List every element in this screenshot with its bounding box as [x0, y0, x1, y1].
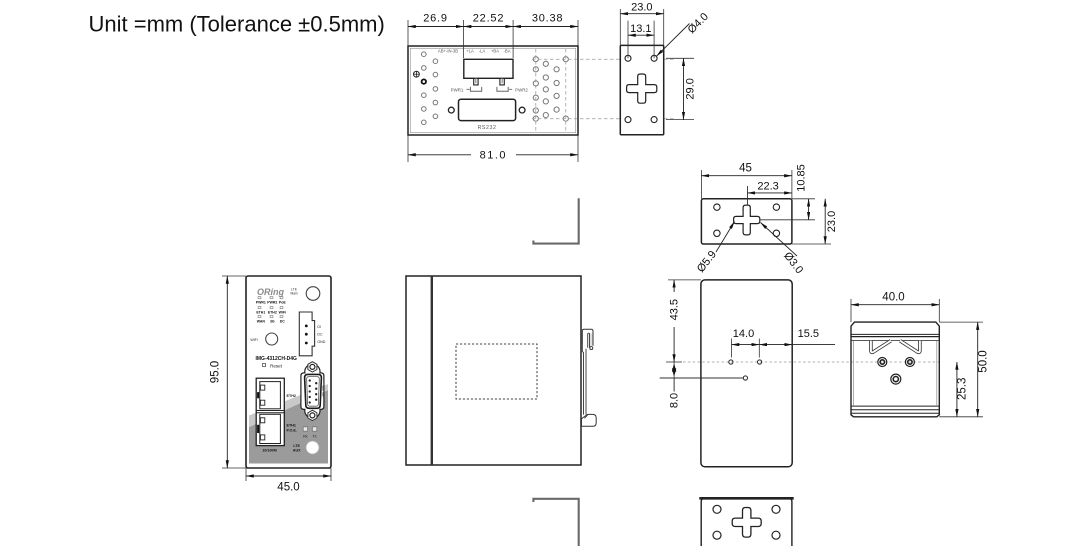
- svg-text:3G: 3G: [270, 319, 275, 323]
- svg-text:15.5: 15.5: [798, 328, 819, 340]
- svg-text:81.0: 81.0: [480, 150, 507, 162]
- svg-text:AB+-IN-3B: AB+-IN-3B: [438, 49, 458, 54]
- svg-text:50.0: 50.0: [978, 350, 990, 372]
- svg-text:WAN: WAN: [257, 319, 266, 323]
- svg-text:PWR2: PWR2: [515, 88, 528, 93]
- svg-text:45: 45: [739, 163, 752, 175]
- svg-text:ETH1: ETH1: [287, 424, 296, 428]
- svg-text:WiFi: WiFi: [250, 338, 257, 342]
- svg-text:PWR1: PWR1: [451, 88, 464, 93]
- svg-text:Main: Main: [290, 292, 297, 296]
- svg-text:+BA: +BA: [491, 49, 499, 54]
- svg-text:PWR2: PWR2: [267, 300, 277, 304]
- svg-text:10/100M: 10/100M: [262, 449, 276, 453]
- svg-text:Reset: Reset: [270, 364, 283, 369]
- svg-text:26.9: 26.9: [423, 13, 448, 25]
- svg-text:ETH2: ETH2: [268, 310, 277, 314]
- svg-text:22.52: 22.52: [473, 13, 505, 25]
- svg-text:ETH2: ETH2: [287, 394, 296, 398]
- svg-text:40.0: 40.0: [882, 291, 904, 303]
- svg-text:PoE: PoE: [279, 300, 286, 304]
- svg-text:-LA: -LA: [479, 49, 486, 54]
- svg-text:IMG-4312CH-D4G: IMG-4312CH-D4G: [256, 356, 298, 362]
- svg-text:ORing: ORing: [257, 287, 284, 297]
- svg-text:+LA: +LA: [466, 49, 474, 54]
- svg-text:30.38: 30.38: [532, 13, 564, 25]
- svg-text:8.0: 8.0: [669, 393, 681, 408]
- svg-text:Rx: Rx: [303, 435, 308, 439]
- svg-text:29.0: 29.0: [685, 78, 697, 99]
- svg-text:43.5: 43.5: [669, 299, 681, 320]
- svg-text:GND: GND: [317, 340, 325, 344]
- svg-text:DI: DI: [317, 325, 321, 329]
- svg-text:22.3: 22.3: [757, 180, 778, 192]
- svg-text:RS232: RS232: [478, 125, 497, 131]
- svg-text:DC: DC: [317, 333, 323, 337]
- svg-text:LTE: LTE: [293, 444, 300, 448]
- svg-text:Unit =mm (Tolerance ±0.5mm): Unit =mm (Tolerance ±0.5mm): [89, 11, 385, 36]
- svg-text:DC: DC: [280, 319, 286, 323]
- svg-text:23.0: 23.0: [631, 2, 652, 14]
- svg-text:RS-232: RS-232: [322, 385, 326, 396]
- svg-text:WiFi: WiFi: [279, 310, 286, 314]
- svg-text:PWR1: PWR1: [256, 300, 266, 304]
- svg-text:Tx: Tx: [313, 435, 317, 439]
- svg-text:25.3: 25.3: [957, 378, 969, 400]
- svg-text:45.0: 45.0: [277, 482, 299, 494]
- svg-text:13.1: 13.1: [630, 23, 651, 35]
- svg-text:23.0: 23.0: [826, 211, 838, 232]
- svg-text:ETH1: ETH1: [256, 310, 265, 314]
- svg-text:95.0: 95.0: [210, 361, 222, 383]
- svg-text:-BA: -BA: [504, 49, 511, 54]
- svg-text:14.0: 14.0: [733, 328, 754, 340]
- svg-text:10.85: 10.85: [796, 164, 808, 192]
- svg-text:P.O.E.: P.O.E.: [287, 429, 297, 433]
- svg-text:AUX: AUX: [293, 449, 301, 453]
